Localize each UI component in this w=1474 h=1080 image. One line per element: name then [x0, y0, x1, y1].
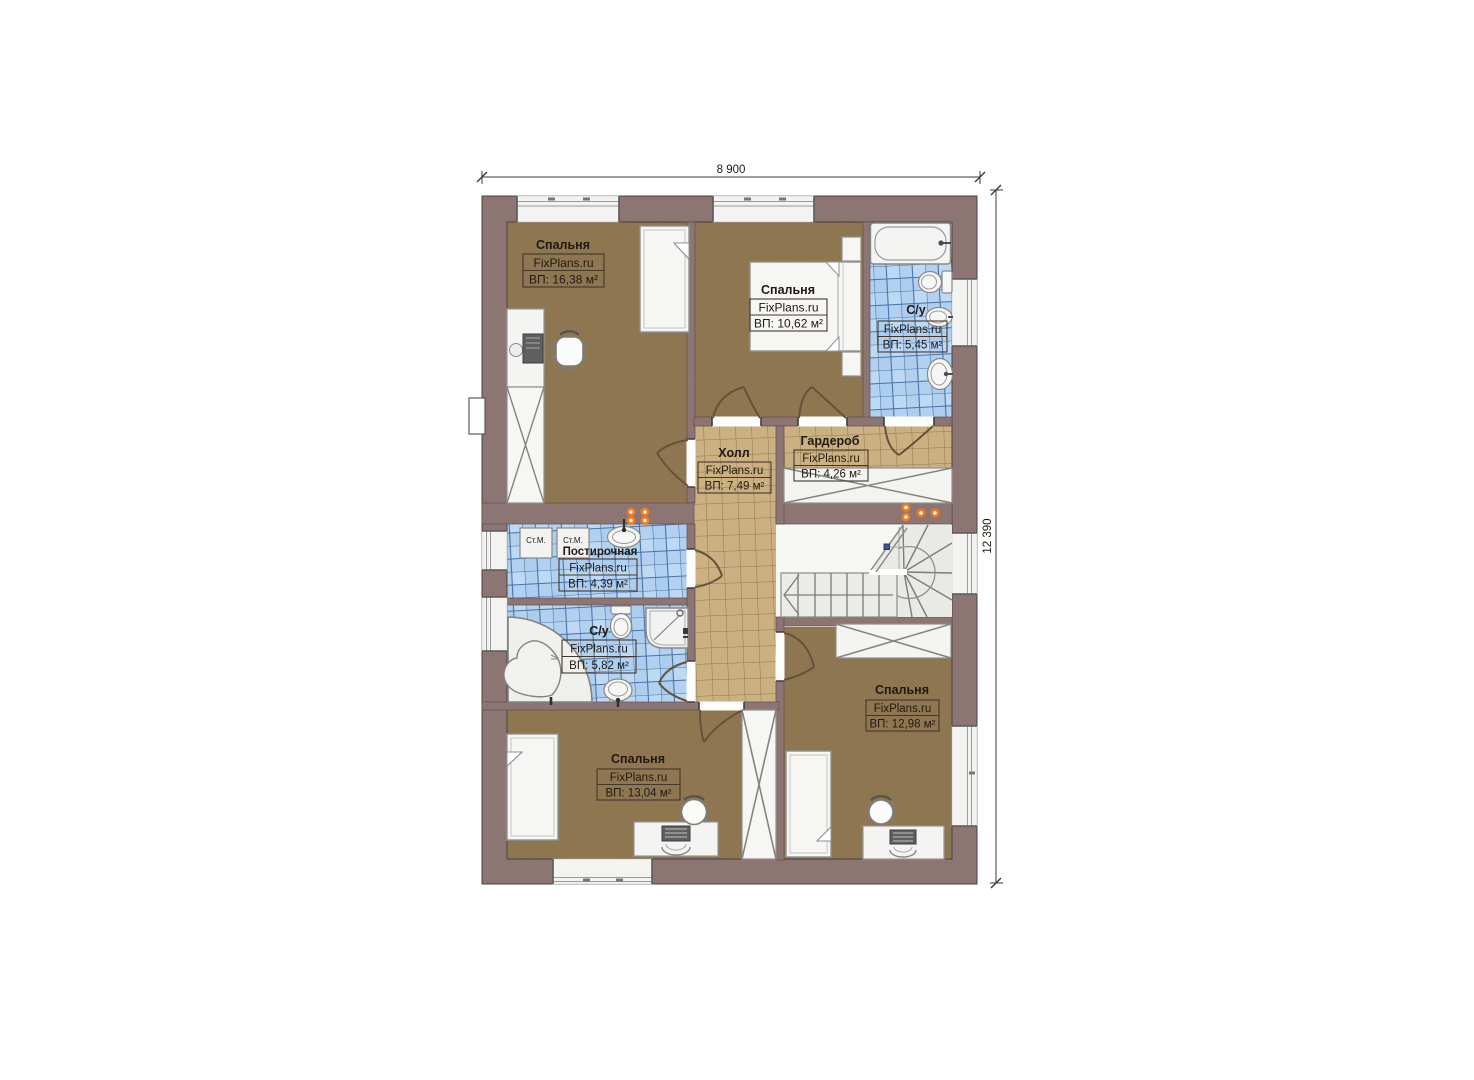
svg-text:ВП: 7,49 м²: ВП: 7,49 м² — [705, 481, 765, 493]
svg-text:FixPlans.ru: FixPlans.ru — [610, 772, 668, 784]
svg-text:FixPlans.ru: FixPlans.ru — [569, 563, 627, 575]
svg-text:FixPlans.ru: FixPlans.ru — [706, 465, 764, 477]
svg-text:ВП: 5,45 м²: ВП: 5,45 м² — [883, 340, 943, 352]
svg-text:FixPlans.ru: FixPlans.ru — [533, 256, 593, 270]
svg-text:С/у: С/у — [589, 624, 609, 638]
svg-text:ВП: 4,39 м²: ВП: 4,39 м² — [568, 579, 628, 591]
svg-text:FixPlans.ru: FixPlans.ru — [570, 644, 628, 656]
svg-text:С/у: С/у — [906, 303, 926, 317]
svg-text:Спальня: Спальня — [536, 238, 590, 252]
svg-text:ВП: 13,04 м²: ВП: 13,04 м² — [605, 788, 671, 800]
svg-text:FixPlans.ru: FixPlans.ru — [802, 453, 860, 465]
svg-text:Гардероб: Гардероб — [800, 434, 859, 448]
svg-text:ВП: 12,98 м²: ВП: 12,98 м² — [869, 719, 935, 731]
svg-text:ВП: 4,26 м²: ВП: 4,26 м² — [801, 469, 861, 481]
svg-text:Ст.М.: Ст.М. — [563, 536, 583, 545]
svg-text:Спальня: Спальня — [611, 752, 665, 766]
svg-text:Ст.М.: Ст.М. — [526, 536, 546, 545]
svg-text:ВП: 16,38 м²: ВП: 16,38 м² — [529, 273, 598, 287]
svg-text:ВП: 10,62 м²: ВП: 10,62 м² — [754, 317, 823, 331]
svg-text:Спальня: Спальня — [875, 683, 929, 697]
svg-text:Холл: Холл — [718, 446, 749, 460]
svg-text:Постирочная: Постирочная — [563, 546, 638, 558]
svg-text:ВП: 5,82 м²: ВП: 5,82 м² — [569, 660, 629, 672]
svg-text:8 900: 8 900 — [717, 164, 746, 176]
svg-text:FixPlans.ru: FixPlans.ru — [874, 703, 932, 715]
svg-text:FixPlans.ru: FixPlans.ru — [884, 324, 942, 336]
svg-text:FixPlans.ru: FixPlans.ru — [758, 301, 818, 315]
svg-text:Спальня: Спальня — [761, 283, 815, 297]
svg-text:12 390: 12 390 — [982, 518, 994, 553]
